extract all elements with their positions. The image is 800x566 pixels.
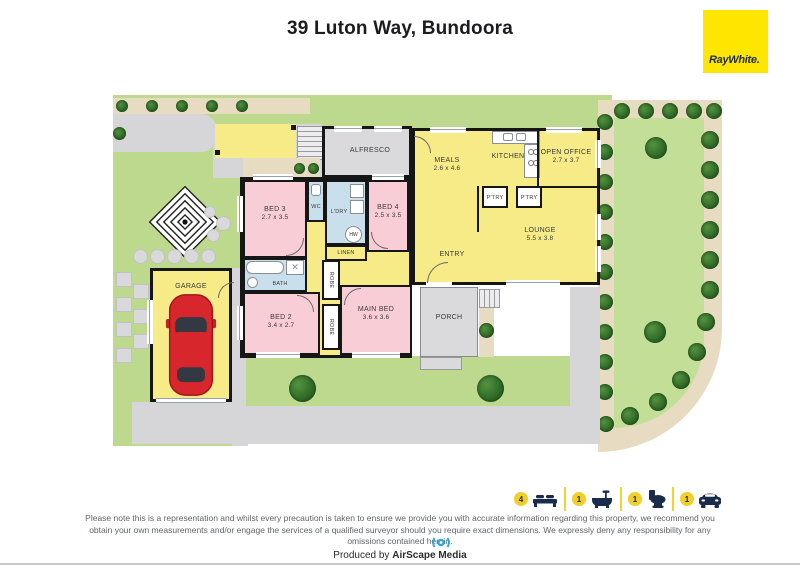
legend-separator <box>672 487 674 511</box>
room-porch <box>420 287 478 357</box>
legend-toilets: 1 <box>628 490 666 508</box>
right-lawn <box>614 118 704 428</box>
tree-icon <box>113 127 126 140</box>
tree-icon <box>176 100 188 112</box>
room-label-wc: WC <box>311 203 321 211</box>
window <box>334 126 362 132</box>
side-path <box>113 114 217 152</box>
window <box>430 127 466 133</box>
bath-icon <box>590 490 614 508</box>
shower-fixture: ✕ <box>286 260 304 275</box>
features-legend: 4 1 1 1 <box>514 487 722 511</box>
tree-icon <box>644 321 666 343</box>
stepping-stone <box>133 249 148 264</box>
wall <box>537 186 600 188</box>
room-label-garage: GARAGE <box>175 283 207 291</box>
car-icon <box>164 293 218 397</box>
window <box>237 306 243 340</box>
window <box>256 352 300 358</box>
tree-icon <box>116 100 128 112</box>
porch-steps <box>479 289 500 308</box>
kitchen-sink <box>516 133 526 141</box>
legend-separator <box>564 487 566 511</box>
stepping-stone <box>204 206 216 218</box>
stepping-stone <box>116 348 132 363</box>
front-path <box>570 287 600 444</box>
washer-fixture <box>350 184 364 198</box>
room-label-pantry2: P'TRY <box>521 194 538 202</box>
tree-icon <box>649 393 667 411</box>
room-label-pantry1: P'TRY <box>487 194 504 202</box>
room-label-entry: ENTRY <box>439 251 464 259</box>
bathroom-count-badge: 1 <box>572 492 586 506</box>
room-label-linen: LINEN <box>337 249 354 257</box>
tree-icon <box>701 191 719 209</box>
page-title: 39 Luton Way, Bundoora <box>0 18 800 40</box>
window <box>546 127 582 133</box>
tree-icon <box>688 343 706 361</box>
basin-fixture <box>247 277 258 288</box>
wall <box>477 186 479 232</box>
room-label-robe2: ROBE <box>327 319 335 335</box>
tree-icon <box>614 103 630 119</box>
tree-icon <box>638 103 654 119</box>
deck-post <box>291 125 296 130</box>
window <box>253 174 293 180</box>
dryer-fixture <box>350 200 364 214</box>
tree-icon <box>672 371 690 389</box>
stepping-stone <box>116 272 132 287</box>
tree-icon <box>701 221 719 239</box>
tree-icon <box>479 323 494 338</box>
tree-icon <box>477 375 504 402</box>
car-icon <box>698 490 722 508</box>
tree-icon <box>701 131 719 149</box>
stepping-stone <box>201 249 216 264</box>
room-label-porch: PORCH <box>436 314 463 322</box>
room-label-bed3: BED 32.7 x 3.5 <box>262 206 289 222</box>
floorplan-page: 39 Luton Way, Bundoora RayWhite. <box>0 0 800 566</box>
tree-icon <box>598 416 614 432</box>
tree-icon <box>686 103 702 119</box>
tree-icon <box>206 100 218 112</box>
tree-icon <box>701 281 719 299</box>
tree-icon <box>236 100 248 112</box>
room-label-robe1: ROBE <box>327 272 335 288</box>
legend-separator <box>620 487 622 511</box>
stepping-stone <box>216 216 231 231</box>
tree-icon <box>662 103 678 119</box>
tree-icon <box>621 407 639 425</box>
deck-post <box>215 150 220 155</box>
window <box>374 126 402 132</box>
car-count-badge: 1 <box>680 492 694 506</box>
stepping-stone <box>184 249 199 264</box>
kitchen-sink <box>503 133 513 141</box>
tree-icon <box>289 375 316 402</box>
room-label-bath: BATH <box>272 280 287 288</box>
bedroom-count-badge: 4 <box>514 492 528 506</box>
raywhite-logo: RayWhite. <box>703 10 768 73</box>
bathtub-fixture <box>246 261 284 274</box>
window <box>147 300 153 344</box>
producer-credit: Produced by AirScape Media <box>0 536 800 561</box>
stepping-stone <box>150 249 165 264</box>
room-label-meals: MEALS2.6 x 4.6 <box>434 157 461 173</box>
stepping-stone <box>167 249 182 264</box>
room-label-laundry: L'DRY <box>331 208 348 216</box>
page-bottom-border <box>0 563 800 565</box>
room-label-bed4: BED 42.5 x 3.5 <box>375 204 402 220</box>
wall <box>537 131 539 188</box>
rear-deck <box>215 124 296 158</box>
hot-water-unit: HW <box>345 226 362 243</box>
raywhite-logo-text: RayWhite. <box>709 54 759 66</box>
legend-bathrooms: 1 <box>572 490 614 508</box>
toilet-fixture <box>311 184 321 196</box>
produced-by-text: Produced by <box>333 550 389 561</box>
legend-car-spaces: 1 <box>680 490 722 508</box>
room-label-bed2: BED 23.4 x 2.7 <box>268 314 295 330</box>
room-label-kitchen: KITCHEN <box>492 153 525 161</box>
room-label-open-office: OPEN OFFICE2.7 x 3.7 <box>541 149 592 165</box>
bed-icon <box>532 491 558 507</box>
shrub-icon <box>308 163 319 174</box>
tree-icon <box>701 161 719 179</box>
window <box>506 280 560 286</box>
shrub-icon <box>294 163 305 174</box>
tree-icon <box>645 137 667 159</box>
window <box>595 214 601 240</box>
window <box>595 246 601 272</box>
porch-step <box>420 357 462 370</box>
tree-icon <box>706 103 722 119</box>
toilet-icon <box>646 490 666 508</box>
driveway <box>132 402 600 444</box>
airscape-drone-icon <box>430 536 452 549</box>
window <box>595 140 601 168</box>
room-label-lounge: LOUNGE5.5 x 3.8 <box>524 227 555 243</box>
stepping-stone <box>133 284 149 299</box>
stepping-stone <box>207 229 220 242</box>
producer-name: AirScape Media <box>392 550 466 561</box>
toilet-count-badge: 1 <box>628 492 642 506</box>
legend-bedrooms: 4 <box>514 491 558 507</box>
rear-steps <box>297 126 323 160</box>
tree-icon <box>146 100 158 112</box>
window <box>372 174 404 180</box>
room-label-alfresco: ALFRESCO <box>350 147 390 155</box>
garage-door <box>156 398 226 403</box>
tree-icon <box>701 251 719 269</box>
garden-diamond-feature <box>149 186 221 258</box>
room-label-main-bed: MAIN BED3.6 x 3.6 <box>358 306 394 322</box>
stepping-stone <box>116 297 132 312</box>
window <box>237 196 243 232</box>
stepping-stone <box>116 322 132 337</box>
tree-icon <box>697 313 715 331</box>
window <box>352 352 400 358</box>
